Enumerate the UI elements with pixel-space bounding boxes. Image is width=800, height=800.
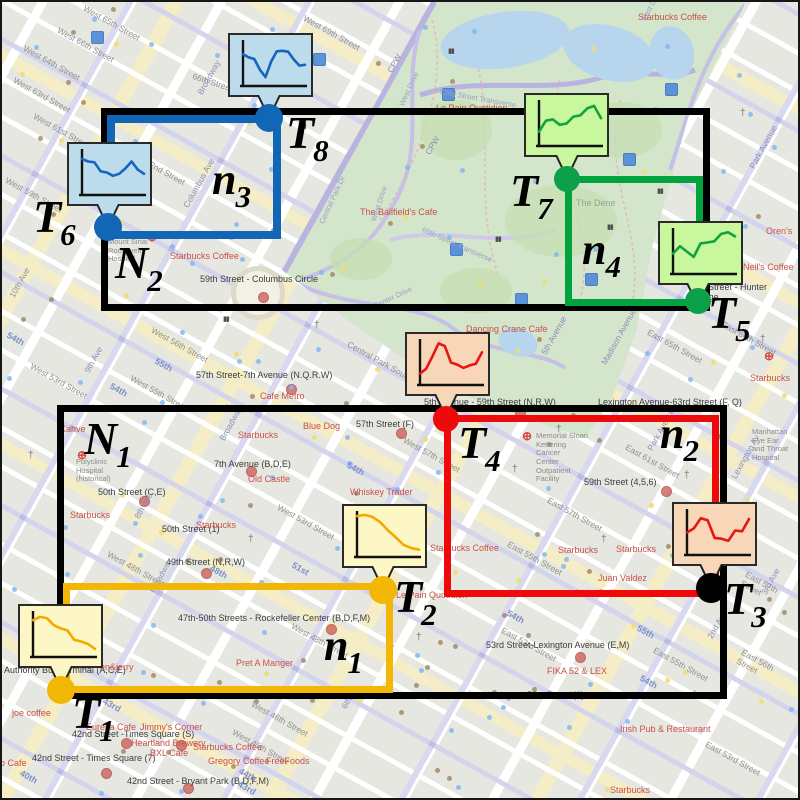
map-label: Heartland Brewery <box>131 738 206 748</box>
bike-dot-icon <box>270 27 275 32</box>
label-subscript: 1 <box>347 649 363 677</box>
sparkline-chart-T7 <box>526 95 607 155</box>
label-N2: N2 <box>115 242 163 283</box>
cafe-dot-icon <box>81 100 86 105</box>
sparkline-chart-T6 <box>69 144 150 204</box>
label-subscript: 6 <box>60 221 76 249</box>
map-label: Oren's <box>766 226 792 236</box>
restroom-icon: ▮▮ <box>448 47 454 55</box>
chart-thumbnail-T4 <box>405 332 490 396</box>
label-subscript: 1 <box>116 443 132 471</box>
label-main: n <box>324 621 348 670</box>
bike-dot-icon <box>316 347 321 352</box>
label-main: N <box>115 237 148 288</box>
bike-dot-icon <box>449 728 454 733</box>
map-label: Gregory Coffee <box>208 756 269 766</box>
chart-thumbnail-T5 <box>658 221 743 285</box>
transit-square-icon <box>665 83 678 96</box>
chart-thumbnail-T1 <box>18 604 103 668</box>
poi-dot-icon <box>711 360 716 365</box>
bike-dot-icon <box>12 587 17 592</box>
label-main: T <box>33 191 61 242</box>
terminal-label-T1: T1 <box>72 692 115 733</box>
map-label: 57th Street-7th Avenue (N.Q.R.W) <box>196 370 332 380</box>
label-main: T <box>286 107 314 158</box>
label-subscript: 2 <box>421 601 437 629</box>
label-subscript: 2 <box>683 437 699 465</box>
label-main: n <box>212 155 236 204</box>
map-label: 42nd Street - Times Square (7) <box>32 753 156 763</box>
cafe-dot-icon <box>49 297 54 302</box>
station-dot-icon <box>101 768 112 779</box>
map-label: joe coffee <box>12 708 51 718</box>
poi-dot-icon <box>782 393 787 398</box>
cafe-dot-icon <box>399 710 404 715</box>
terminal-label-T7: T7 <box>510 170 553 211</box>
label-main: T <box>458 417 486 468</box>
label-main: T <box>510 165 538 216</box>
map-label: Neil's Coffee <box>743 262 794 272</box>
restroom-icon: ▮▮ <box>223 315 229 323</box>
label-subscript: 3 <box>751 603 767 631</box>
terminal-label-T3: T3 <box>724 578 767 619</box>
map-label: Cafe Metro <box>260 391 305 401</box>
label-subscript: 2 <box>147 267 163 295</box>
map-label: BXL Cafe <box>150 748 188 758</box>
transit-square-icon <box>313 53 326 66</box>
map-label: Starbucks <box>750 373 790 383</box>
label-N1: N1 <box>84 418 132 459</box>
terminal-dot-T7 <box>554 166 580 192</box>
bike-dot-icon <box>567 725 572 730</box>
sparkline-chart-T8 <box>230 35 311 95</box>
sparkline-chart-T2 <box>344 506 425 566</box>
label-subscript: 7 <box>537 195 553 223</box>
bike-dot-icon <box>78 380 83 385</box>
label-main: n <box>660 409 684 458</box>
terminal-label-T8: T8 <box>286 112 329 153</box>
terminal-dot-T4 <box>433 406 459 432</box>
label-n2: n2 <box>660 414 699 454</box>
church-cross-icon: † <box>28 450 34 461</box>
poi-dot-icon <box>759 699 764 704</box>
bike-dot-icon <box>289 385 294 390</box>
map-label: Irish Pub & Restaurant <box>620 724 711 734</box>
label-subscript: 4 <box>485 447 501 475</box>
sparkline-chart-T5 <box>660 223 741 283</box>
figure-map-canvas: ⊕⊕⊕⊕▮▮▮▮▮▮▮▮▮▮▮▮†††††††††††† West 65th S… <box>0 0 800 800</box>
terminal-dot-T8 <box>255 104 283 132</box>
label-main: n <box>582 225 606 274</box>
terminal-dot-T2 <box>369 576 397 604</box>
bike-dot-icon <box>688 377 693 382</box>
chart-thumbnail-T6 <box>67 142 152 206</box>
label-subscript: 5 <box>735 317 751 345</box>
poi-dot-icon <box>20 72 25 77</box>
label-main: T <box>708 287 736 338</box>
label-subscript: 4 <box>605 253 621 281</box>
cafe-dot-icon <box>66 80 71 85</box>
church-cross-icon: † <box>740 108 746 119</box>
terminal-label-T4: T4 <box>458 422 501 463</box>
map-label: Jimmy's Corner <box>140 722 202 732</box>
label-n1: n1 <box>324 626 363 666</box>
church-cross-icon: † <box>314 320 320 331</box>
bike-dot-icon <box>7 376 12 381</box>
bike-dot-icon <box>99 791 104 796</box>
bike-dot-icon <box>149 42 154 47</box>
sparkline-chart-T3 <box>674 504 755 564</box>
terminal-label-T6: T6 <box>33 196 76 237</box>
label-subscript: 1 <box>99 717 115 745</box>
bike-dot-icon <box>472 29 477 34</box>
poi-dot-icon <box>114 42 119 47</box>
poi-dot-icon <box>357 698 362 703</box>
bike-dot-icon <box>215 53 220 58</box>
sparkline-chart-T1 <box>20 606 101 666</box>
bike-dot-icon <box>179 789 184 794</box>
chart-thumbnail-T8 <box>228 33 313 97</box>
chart-thumbnail-T3 <box>672 502 757 566</box>
terminal-label-T5: T5 <box>708 292 751 333</box>
map-label: Starbucks <box>610 785 650 795</box>
terminal-label-T2: T2 <box>394 576 437 617</box>
transit-square-icon <box>91 31 104 44</box>
label-subscript: 3 <box>235 183 251 211</box>
map-label: FreeFoods <box>266 756 310 766</box>
label-main: T <box>72 687 100 738</box>
sparkline-chart-T4 <box>407 334 488 394</box>
cafe-dot-icon <box>111 7 116 12</box>
label-main: T <box>724 573 752 624</box>
chart-thumbnail-T2 <box>342 504 427 568</box>
bike-dot-icon <box>743 224 748 229</box>
cafe-dot-icon <box>450 79 455 84</box>
terminal-dot-T1 <box>47 676 75 704</box>
bike-dot-icon <box>501 705 506 710</box>
label-n4: n4 <box>582 230 621 270</box>
label-n3: n3 <box>212 160 251 200</box>
label-main: N <box>84 413 117 464</box>
label-main: T <box>394 571 422 622</box>
chart-thumbnail-T7 <box>524 93 609 157</box>
terminal-dot-T3 <box>696 573 726 603</box>
cafe-dot-icon <box>447 776 452 781</box>
label-subscript: 8 <box>313 137 329 165</box>
